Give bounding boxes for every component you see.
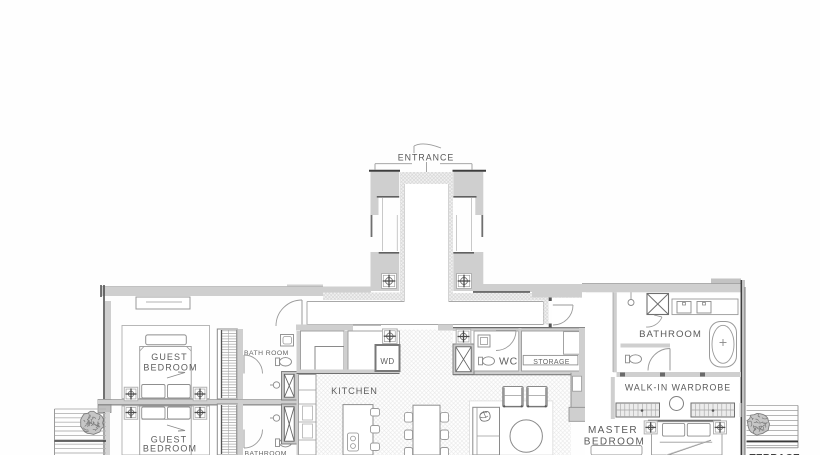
svg-text:GUEST: GUEST <box>151 352 188 362</box>
svg-text:BEDROOM: BEDROOM <box>143 444 197 454</box>
svg-text:WC: WC <box>499 356 518 368</box>
svg-text:BEDROOM: BEDROOM <box>143 362 197 372</box>
svg-text:WALK-IN WARDROBE: WALK-IN WARDROBE <box>625 382 731 392</box>
svg-text:MASTER: MASTER <box>588 425 638 436</box>
svg-text:BATHROOM: BATHROOM <box>639 329 702 340</box>
svg-text:BATHROOM: BATHROOM <box>245 451 287 455</box>
svg-text:STORAGE: STORAGE <box>533 359 570 366</box>
svg-text:WD: WD <box>380 357 394 366</box>
svg-text:ENTRANCE: ENTRANCE <box>398 153 454 163</box>
svg-text:KITCHEN: KITCHEN <box>331 386 378 396</box>
